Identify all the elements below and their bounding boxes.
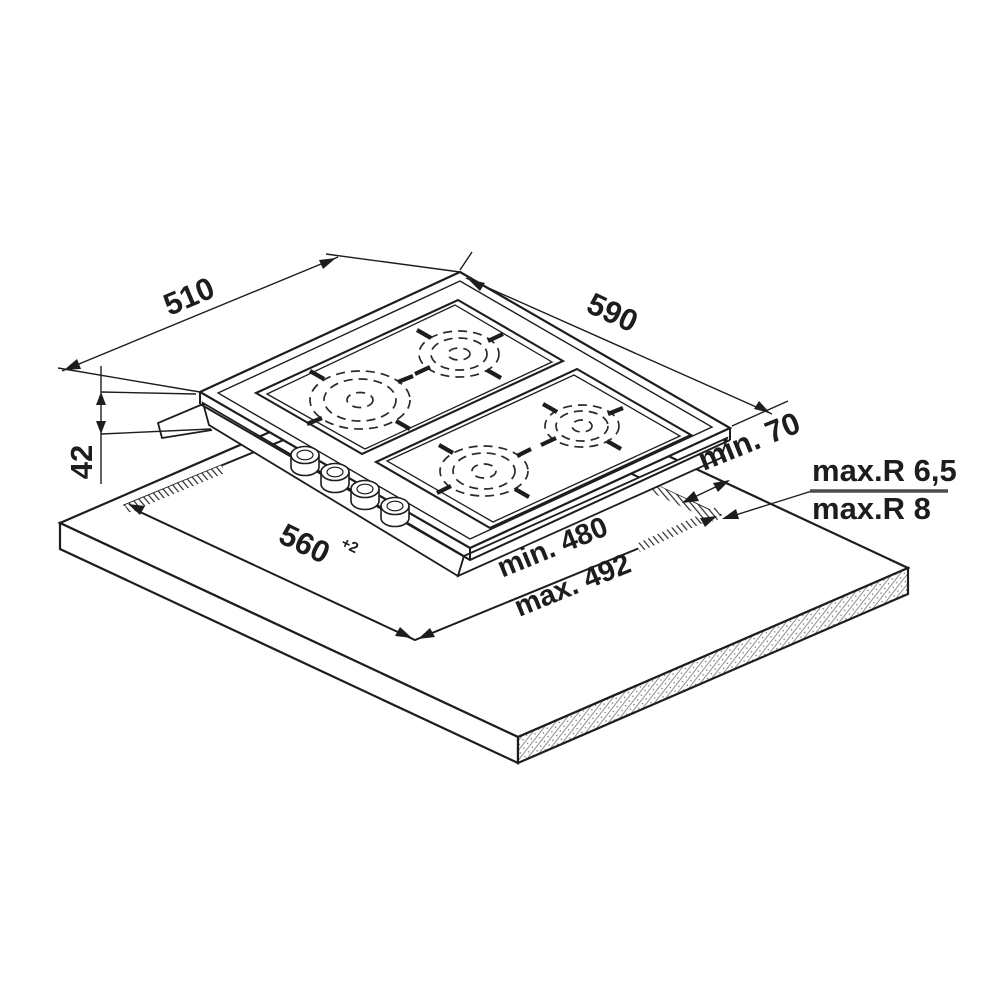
knob-1 (291, 447, 319, 476)
corner-radius-bottom-label: max.R 8 (812, 491, 931, 526)
installation-diagram: 560 +2 min. 480 max. 492 (0, 0, 1000, 1000)
dimension-depth-label: 510 (158, 270, 219, 322)
knob-3 (351, 481, 379, 510)
screenshot-canvas: 560 +2 min. 480 max. 492 (0, 0, 1000, 1000)
arrow (754, 401, 770, 413)
knob-4 (381, 498, 409, 527)
knob-2 (321, 464, 349, 493)
arrow (96, 421, 106, 434)
dimension-width-label: 590 (582, 286, 644, 340)
extension-line (58, 368, 200, 392)
corner-radius-top-label: max.R 6,5 (812, 453, 957, 488)
arrow (64, 359, 81, 370)
arrow (96, 392, 106, 405)
extension-line (326, 254, 460, 272)
arrow (319, 258, 336, 269)
extension-line (460, 252, 472, 270)
dimension-height-label: 42 (64, 445, 99, 479)
extension-line (101, 392, 196, 394)
